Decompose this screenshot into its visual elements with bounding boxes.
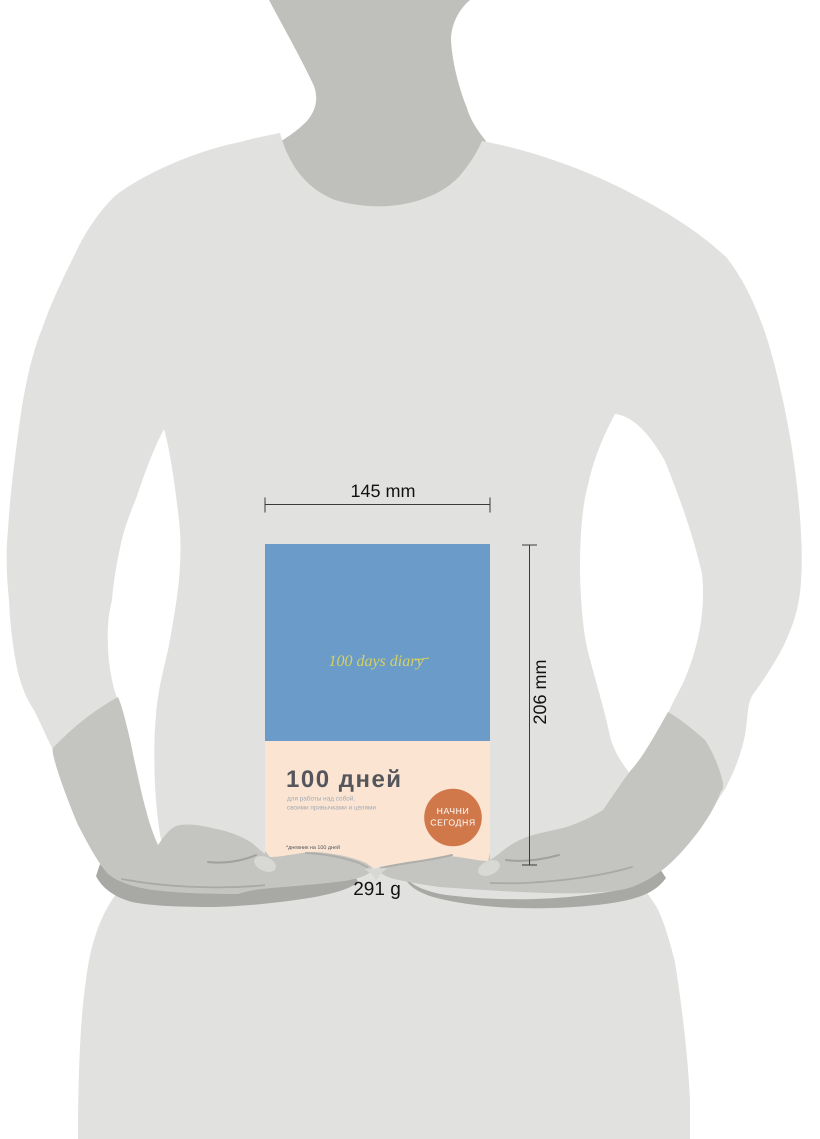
svg-text:своими привычками и целями: своими привычками и целями xyxy=(287,805,376,812)
svg-text:100 days diary: 100 days diary xyxy=(328,653,424,670)
svg-text:206 mm: 206 mm xyxy=(530,659,550,724)
svg-text:*дневник на 100 дней: *дневник на 100 дней xyxy=(286,845,340,851)
svg-text:НАЧНИ: НАЧНИ xyxy=(437,806,470,816)
svg-text:для работы над собой,: для работы над собой, xyxy=(287,796,355,803)
svg-text:291 g: 291 g xyxy=(353,879,401,900)
svg-text:СЕГОДНЯ: СЕГОДНЯ xyxy=(430,818,475,828)
svg-text:100 дней: 100 дней xyxy=(286,766,403,793)
svg-text:145 mm: 145 mm xyxy=(350,481,415,501)
